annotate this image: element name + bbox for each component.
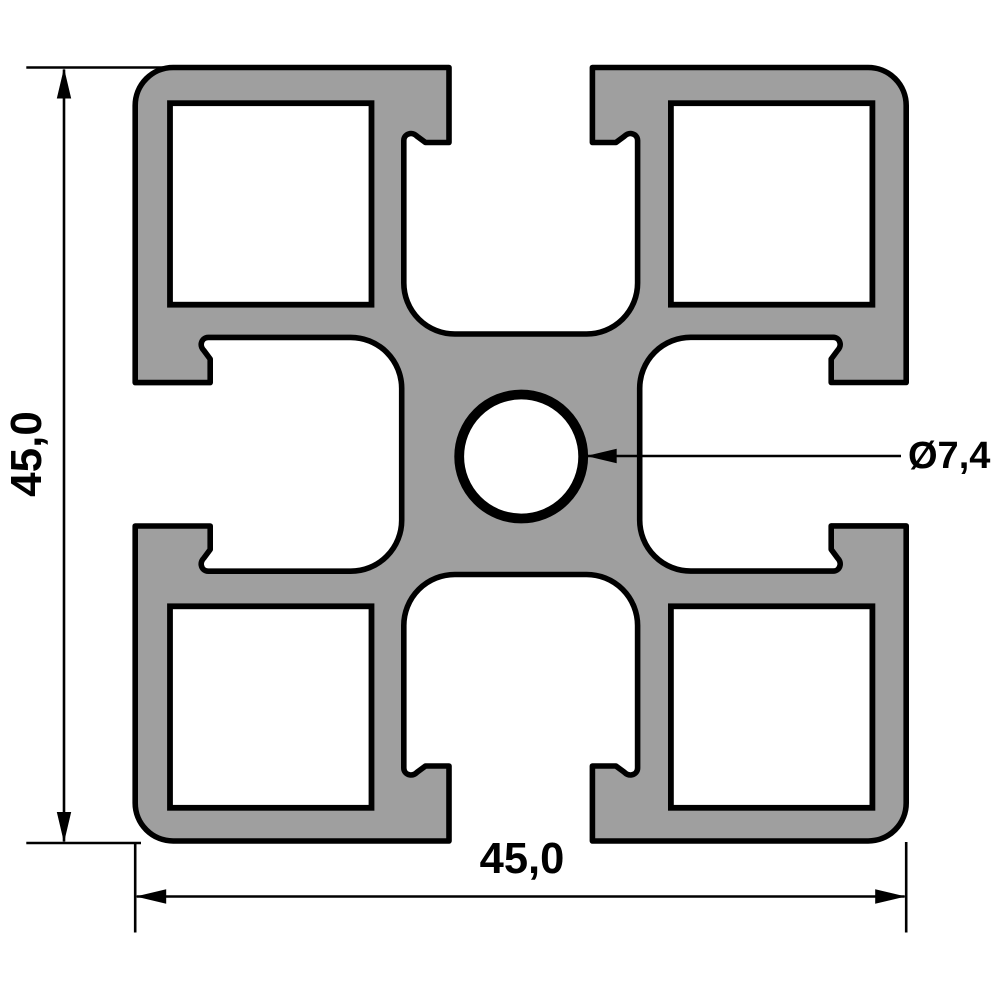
svg-text:45,0: 45,0 [2,411,51,497]
svg-text:Ø7,4: Ø7,4 [908,435,990,477]
svg-text:45,0: 45,0 [480,835,565,883]
